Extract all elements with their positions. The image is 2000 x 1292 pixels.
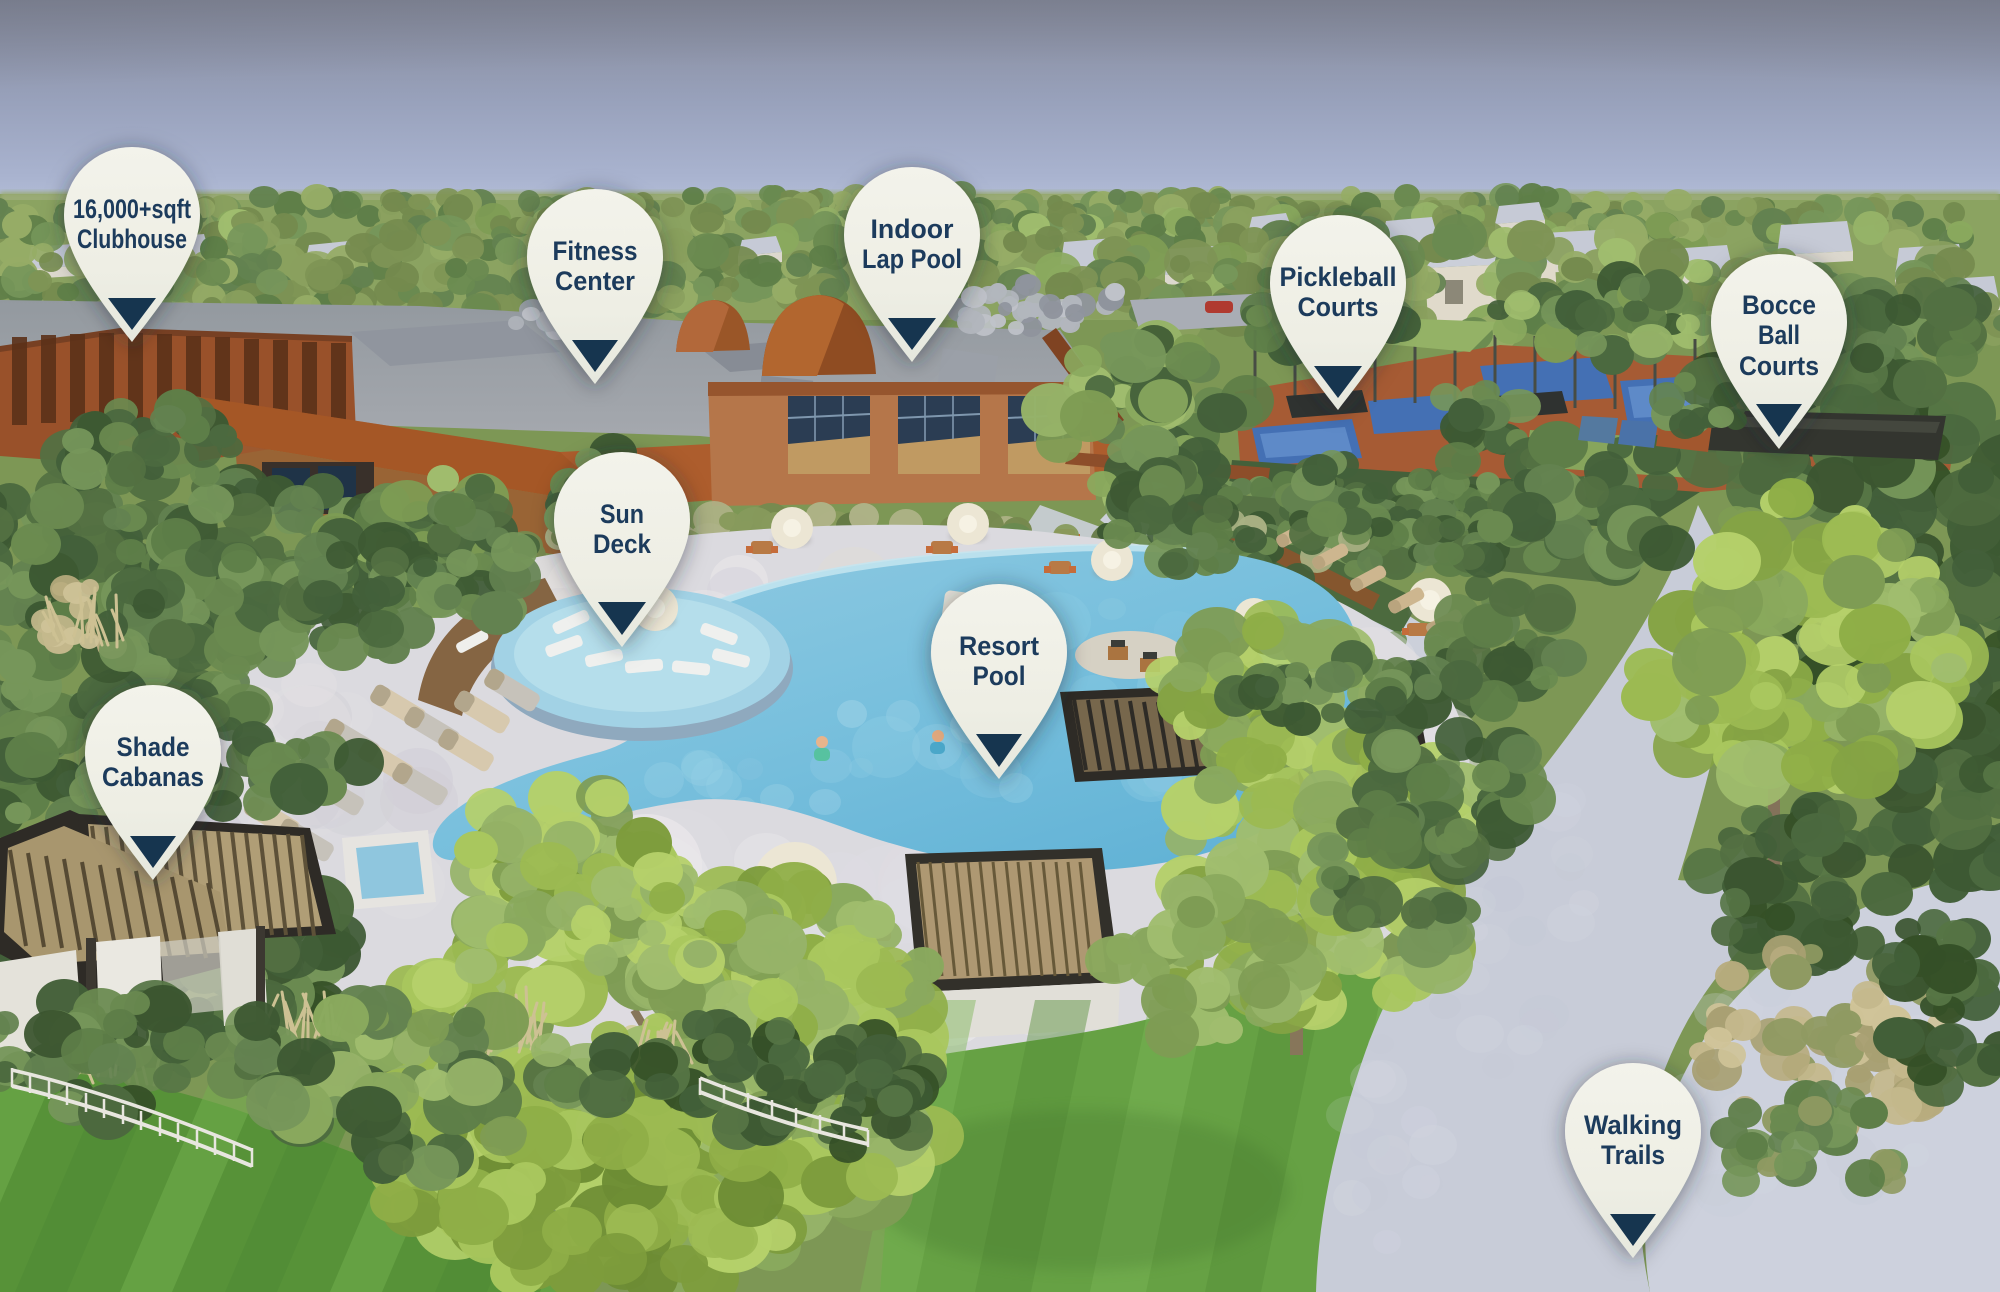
svg-text:Courts: Courts	[1739, 351, 1819, 381]
svg-text:Shade: Shade	[117, 732, 190, 762]
svg-text:Clubhouse: Clubhouse	[77, 224, 187, 254]
svg-text:Bocce: Bocce	[1742, 290, 1816, 320]
svg-text:16,000+sqft: 16,000+sqft	[73, 194, 191, 224]
svg-text:Ball: Ball	[1758, 320, 1800, 350]
svg-text:Cabanas: Cabanas	[102, 762, 204, 792]
svg-text:Trails: Trails	[1601, 1140, 1665, 1170]
svg-text:Walking: Walking	[1584, 1110, 1682, 1140]
svg-text:Indoor: Indoor	[871, 214, 954, 244]
svg-text:Courts: Courts	[1298, 292, 1379, 322]
svg-text:Sun: Sun	[600, 499, 644, 529]
svg-text:Deck: Deck	[593, 529, 652, 559]
svg-text:Lap Pool: Lap Pool	[862, 244, 962, 274]
svg-text:Fitness: Fitness	[553, 236, 638, 266]
svg-text:Pool: Pool	[973, 661, 1026, 691]
svg-text:Resort: Resort	[959, 631, 1039, 661]
svg-text:Pickleball: Pickleball	[1280, 262, 1397, 292]
svg-text:Center: Center	[555, 266, 635, 296]
